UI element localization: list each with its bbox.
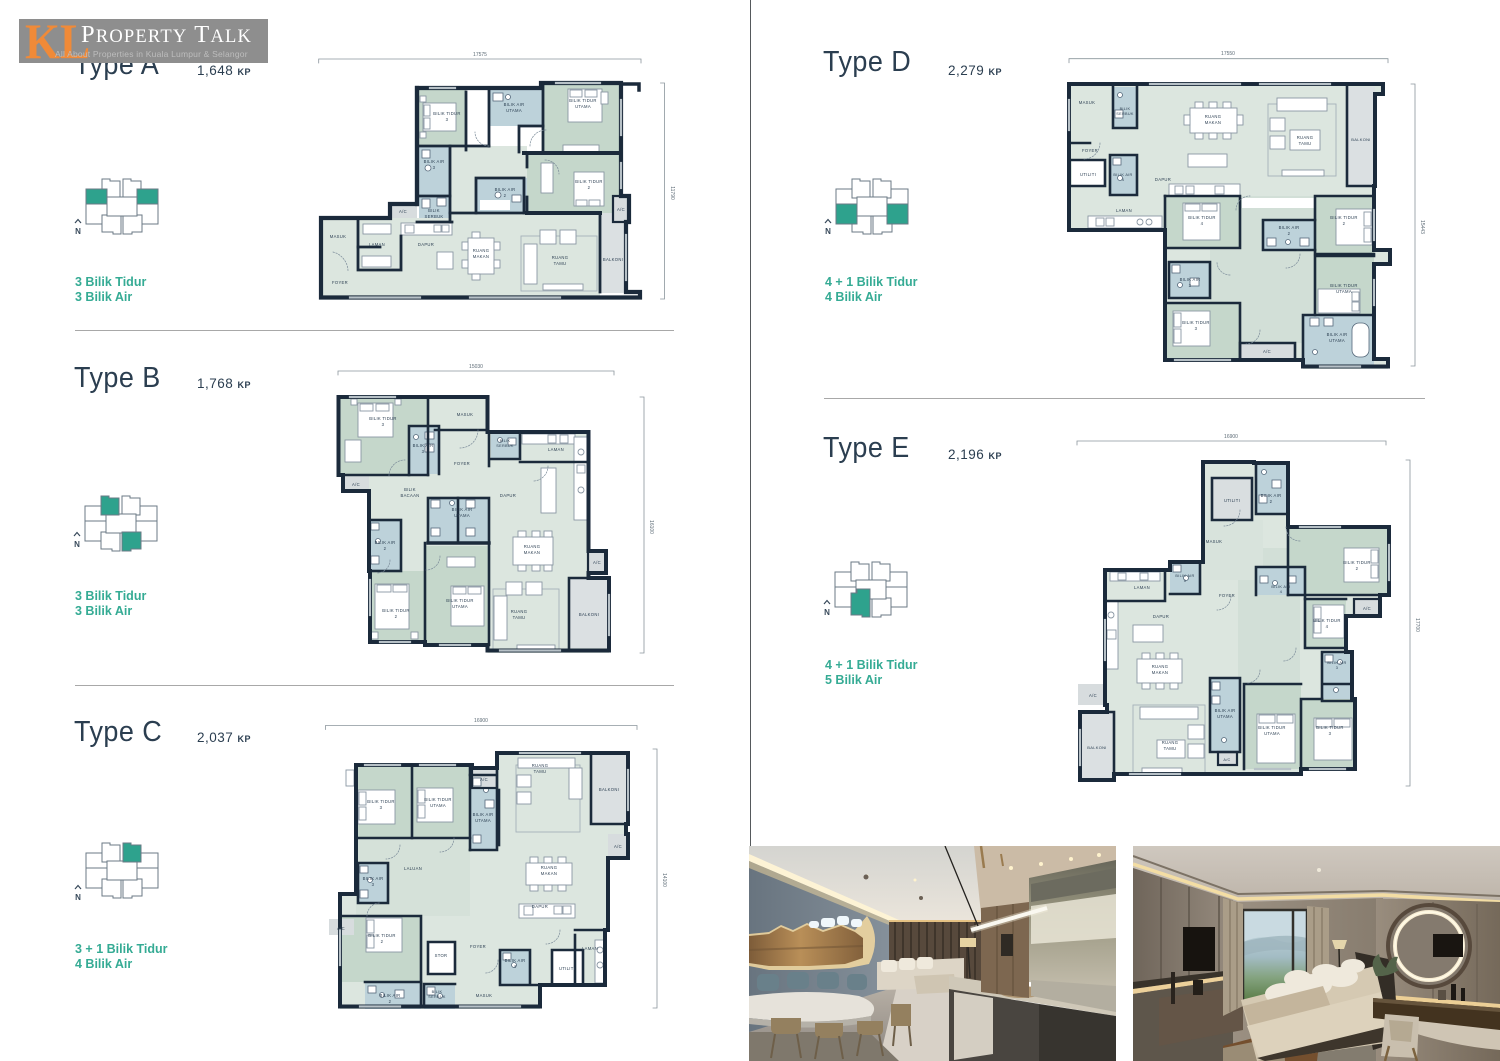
svg-text:BILIK TIDUR: BILIK TIDUR	[382, 608, 409, 613]
svg-text:LAMAN: LAMAN	[548, 447, 564, 452]
svg-text:4: 4	[1326, 624, 1329, 629]
svg-text:BILIK TIDUR: BILIK TIDUR	[1316, 725, 1343, 730]
svg-text:17700: 17700	[1414, 618, 1420, 632]
svg-text:MASUK: MASUK	[457, 412, 473, 417]
svg-text:4: 4	[514, 964, 517, 969]
svg-text:DAPUR: DAPUR	[418, 242, 434, 247]
svg-text:BILIK AIR: BILIK AIR	[1175, 574, 1194, 578]
svg-text:BILIK AIR: BILIK AIR	[363, 876, 384, 881]
svg-text:BALKONI: BALKONI	[579, 612, 599, 617]
svg-text:BILIK AIR: BILIK AIR	[424, 159, 445, 164]
svg-text:N: N	[74, 540, 80, 549]
svg-text:RUANG: RUANG	[552, 255, 569, 260]
svg-text:BILIK TIDUR: BILIK TIDUR	[1313, 618, 1340, 623]
svg-text:FOYER: FOYER	[1082, 148, 1098, 153]
svg-text:RUANG: RUANG	[524, 544, 541, 549]
svg-text:2: 2	[1343, 221, 1346, 226]
svg-text:2: 2	[1288, 231, 1291, 236]
svg-text:RUANG: RUANG	[511, 609, 528, 614]
svg-text:BALKONI: BALKONI	[599, 787, 619, 792]
svg-text:BILIK TIDUR: BILIK TIDUR	[368, 933, 395, 938]
svg-text:A/C: A/C	[1089, 693, 1097, 698]
svg-text:3: 3	[382, 422, 385, 427]
svg-text:RUANG: RUANG	[1205, 114, 1222, 119]
svg-text:BILIK AIR: BILIK AIR	[1261, 493, 1282, 498]
svg-text:RUANG: RUANG	[532, 763, 549, 768]
svg-text:RUANG: RUANG	[1297, 135, 1314, 140]
svg-text:3: 3	[1336, 666, 1338, 670]
svg-text:BALKONI: BALKONI	[1351, 137, 1370, 142]
svg-text:BILIK: BILIK	[500, 439, 511, 443]
svg-text:RUANG: RUANG	[1162, 740, 1179, 745]
svg-text:MAKAN: MAKAN	[524, 550, 540, 555]
svg-text:BILIK TIDUR: BILIK TIDUR	[369, 416, 396, 421]
svg-text:TAMU: TAMU	[1299, 141, 1312, 146]
svg-text:BILIK AIR: BILIK AIR	[1215, 708, 1236, 713]
svg-text:LAMAN: LAMAN	[369, 242, 385, 247]
svg-text:3: 3	[422, 449, 425, 454]
svg-text:N: N	[824, 608, 830, 617]
svg-text:DAPUR: DAPUR	[532, 904, 548, 909]
svg-text:4: 4	[1280, 590, 1282, 594]
svg-text:TAMU: TAMU	[1164, 746, 1177, 751]
svg-text:BILIK AIR: BILIK AIR	[380, 993, 401, 998]
svg-text:UTAMA: UTAMA	[1264, 731, 1280, 736]
svg-text:MASUK: MASUK	[476, 993, 492, 998]
svg-text:FOYER: FOYER	[332, 280, 348, 285]
svg-text:RUANG: RUANG	[541, 865, 558, 870]
svg-text:BILIK AIR: BILIK AIR	[505, 958, 526, 963]
svg-text:BILIK AIR: BILIK AIR	[413, 443, 434, 448]
svg-text:UTAMA: UTAMA	[1217, 714, 1233, 719]
svg-text:16900: 16900	[1224, 434, 1238, 440]
svg-text:17575: 17575	[473, 52, 487, 58]
svg-text:TAMU: TAMU	[534, 769, 547, 774]
svg-text:FOYER: FOYER	[470, 944, 486, 949]
svg-text:A/C: A/C	[1363, 606, 1371, 611]
svg-text:3: 3	[446, 117, 449, 122]
svg-text:16900: 16900	[474, 718, 488, 724]
svg-text:UTAMA: UTAMA	[575, 104, 591, 109]
svg-text:BILIK TIDUR: BILIK TIDUR	[1330, 283, 1357, 288]
svg-text:BILIK TIDUR: BILIK TIDUR	[424, 797, 451, 802]
svg-text:MAKAN: MAKAN	[473, 254, 489, 259]
svg-text:UTAMA: UTAMA	[506, 108, 522, 113]
svg-text:BILIK AIR: BILIK AIR	[1327, 332, 1348, 337]
svg-text:N: N	[75, 893, 81, 902]
svg-text:A/C: A/C	[614, 844, 622, 849]
svg-text:MASUK: MASUK	[1206, 539, 1222, 544]
svg-text:BILIK: BILIK	[1120, 107, 1131, 111]
svg-text:SERBUK: SERBUK	[424, 214, 443, 219]
svg-text:2: 2	[381, 939, 384, 944]
svg-text:BILIK TIDUR: BILIK TIDUR	[575, 179, 602, 184]
svg-text:BILIK TIDUR: BILIK TIDUR	[367, 799, 394, 804]
svg-text:UTILITI: UTILITI	[1224, 498, 1240, 503]
svg-text:2: 2	[384, 546, 387, 551]
svg-text:UTAMA: UTAMA	[1336, 289, 1352, 294]
svg-text:UTILITI: UTILITI	[1080, 172, 1096, 177]
svg-text:2: 2	[1270, 499, 1273, 504]
svg-text:BILIK TIDUR: BILIK TIDUR	[1343, 560, 1370, 565]
svg-text:BILIK TIDUR: BILIK TIDUR	[1182, 320, 1209, 325]
svg-text:LALUAN: LALUAN	[404, 866, 422, 871]
svg-text:3: 3	[380, 805, 383, 810]
svg-text:17550: 17550	[1221, 51, 1235, 57]
svg-text:BILIK AIR: BILIK AIR	[375, 540, 396, 545]
svg-text:14100: 14100	[661, 873, 667, 887]
svg-text:LAMAN: LAMAN	[582, 946, 598, 951]
svg-text:UTAMA: UTAMA	[430, 803, 446, 808]
svg-text:3: 3	[433, 165, 436, 170]
svg-text:SERBUK: SERBUK	[428, 995, 446, 999]
svg-text:BILIK AIR: BILIK AIR	[473, 812, 494, 817]
svg-text:UTAMA: UTAMA	[1329, 338, 1345, 343]
svg-text:BILIK TIDUR: BILIK TIDUR	[1188, 215, 1215, 220]
svg-text:RUANG: RUANG	[1152, 664, 1169, 669]
svg-text:A/C: A/C	[399, 209, 407, 214]
svg-text:TAMU: TAMU	[554, 261, 567, 266]
svg-text:A/C: A/C	[352, 482, 360, 487]
svg-text:A/C: A/C	[480, 777, 488, 782]
svg-text:N: N	[75, 227, 81, 236]
svg-text:SERBUK: SERBUK	[496, 444, 514, 448]
svg-text:UTILITI: UTILITI	[559, 966, 575, 971]
svg-text:MAKAN: MAKAN	[1152, 670, 1168, 675]
svg-text:DAPUR: DAPUR	[1153, 614, 1169, 619]
svg-text:3: 3	[372, 882, 375, 887]
svg-text:A/C: A/C	[617, 207, 625, 212]
svg-text:LAMAN: LAMAN	[1116, 208, 1132, 213]
svg-text:UTAMA: UTAMA	[454, 513, 470, 518]
svg-text:BILIK: BILIK	[432, 990, 443, 994]
svg-text:MAKAN: MAKAN	[541, 871, 557, 876]
svg-text:DAPUR: DAPUR	[500, 493, 516, 498]
svg-text:BALKONI: BALKONI	[1087, 745, 1106, 750]
svg-text:16100: 16100	[648, 520, 654, 534]
svg-text:LAMAN: LAMAN	[1134, 585, 1150, 590]
svg-text:2: 2	[389, 999, 392, 1004]
svg-text:DAPUR: DAPUR	[1155, 177, 1171, 182]
svg-text:A/C: A/C	[593, 560, 601, 565]
svg-text:STOR: STOR	[435, 953, 448, 958]
svg-text:A/C: A/C	[1263, 349, 1271, 354]
svg-text:FOYER: FOYER	[454, 461, 470, 466]
svg-text:A/C: A/C	[337, 926, 345, 931]
svg-text:A/C: A/C	[1223, 758, 1230, 762]
svg-text:UTAMA: UTAMA	[452, 604, 468, 609]
svg-text:BILIK AIR: BILIK AIR	[1279, 225, 1300, 230]
svg-text:11790: 11790	[669, 186, 675, 200]
svg-text:BILIK AIR: BILIK AIR	[1327, 661, 1346, 665]
svg-text:2: 2	[395, 614, 398, 619]
svg-text:5: 5	[1184, 579, 1186, 583]
svg-text:MAKAN: MAKAN	[1205, 120, 1221, 125]
svg-text:MASUK: MASUK	[330, 234, 346, 239]
svg-text:BILIK TIDUR: BILIK TIDUR	[433, 111, 460, 116]
svg-text:BALKONI: BALKONI	[603, 257, 623, 262]
svg-text:N: N	[825, 227, 831, 236]
svg-text:2: 2	[1356, 566, 1359, 571]
svg-text:4: 4	[1122, 178, 1124, 182]
svg-text:UTAMA: UTAMA	[475, 818, 491, 823]
svg-text:15443: 15443	[1419, 220, 1425, 234]
svg-text:3: 3	[1329, 731, 1332, 736]
svg-text:3: 3	[1195, 326, 1198, 331]
svg-text:BILIK AIR: BILIK AIR	[504, 102, 525, 107]
svg-text:BILIK AIR: BILIK AIR	[452, 507, 473, 512]
svg-text:BILIK TIDUR: BILIK TIDUR	[1330, 215, 1357, 220]
svg-text:BACAAN: BACAAN	[400, 493, 419, 498]
svg-text:BILIK: BILIK	[404, 487, 416, 492]
svg-text:MASUK: MASUK	[1079, 100, 1095, 105]
svg-text:BILIK AIR: BILIK AIR	[1271, 585, 1290, 589]
svg-text:BILIK TIDUR: BILIK TIDUR	[569, 98, 596, 103]
svg-text:TAMU: TAMU	[513, 615, 526, 620]
svg-text:SERBUK: SERBUK	[1116, 112, 1134, 116]
svg-text:BILIK TIDUR: BILIK TIDUR	[1258, 725, 1285, 730]
svg-text:BILIK AIR: BILIK AIR	[1113, 173, 1132, 177]
svg-text:2: 2	[504, 193, 507, 198]
svg-text:RUANG: RUANG	[473, 248, 490, 253]
svg-text:BILIK TIDUR: BILIK TIDUR	[446, 598, 473, 603]
svg-text:4: 4	[1201, 221, 1204, 226]
svg-text:BILIK AIR: BILIK AIR	[1180, 277, 1201, 282]
svg-text:15030: 15030	[469, 364, 483, 370]
svg-text:FOYER: FOYER	[1219, 593, 1235, 598]
svg-text:BILIK AIR: BILIK AIR	[495, 187, 516, 192]
svg-text:2: 2	[588, 185, 591, 190]
svg-text:BILIK: BILIK	[428, 208, 440, 213]
svg-text:3: 3	[1189, 283, 1192, 288]
